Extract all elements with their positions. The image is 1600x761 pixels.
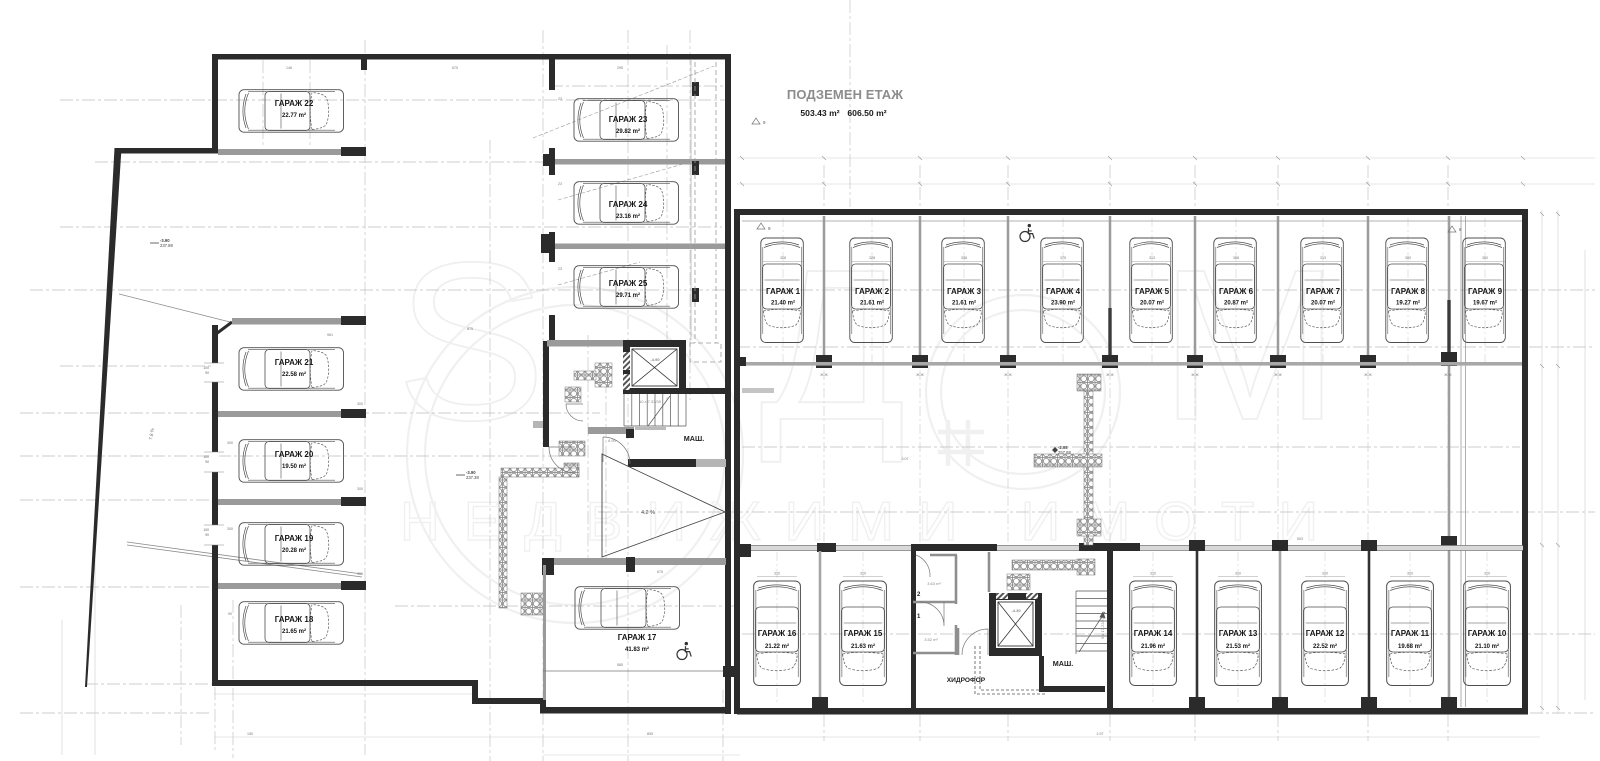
svg-text:875: 875 — [467, 327, 473, 331]
svg-text:21.61 m²: 21.61 m² — [952, 300, 976, 307]
svg-text:ГАРАЖ 22: ГАРАЖ 22 — [275, 99, 314, 108]
svg-text:338: 338 — [961, 256, 967, 260]
svg-text:606.50 m²: 606.50 m² — [847, 108, 886, 118]
svg-text:2.97: 2.97 — [1097, 732, 1104, 736]
svg-text:МАШ.: МАШ. — [684, 434, 704, 443]
svg-text:20.28 m²: 20.28 m² — [282, 547, 306, 554]
svg-text:310: 310 — [1235, 572, 1241, 576]
svg-text:19.27 m²: 19.27 m² — [1396, 300, 1420, 307]
svg-text:300: 300 — [1482, 256, 1488, 260]
svg-text:Ж Ж: Ж Ж — [1004, 373, 1012, 377]
svg-text:310: 310 — [860, 572, 866, 576]
svg-text:ГАРАЖ 20: ГАРАЖ 20 — [275, 450, 314, 459]
svg-text:310: 310 — [774, 572, 780, 576]
svg-text:300: 300 — [357, 402, 363, 406]
svg-text:20.87 m²: 20.87 m² — [1224, 300, 1248, 307]
svg-text:Ж Ж: Ж Ж — [916, 373, 924, 377]
svg-text:ГАРАЖ 3: ГАРАЖ 3 — [947, 287, 982, 296]
svg-text:328: 328 — [869, 256, 875, 260]
svg-text:100: 100 — [203, 455, 209, 459]
svg-text:23: 23 — [558, 97, 562, 101]
svg-text:ГАРАЖ 7: ГАРАЖ 7 — [1306, 287, 1341, 296]
svg-text:ГАРАЖ 6: ГАРАЖ 6 — [1219, 287, 1254, 296]
svg-text:ГАРАЖ 4: ГАРАЖ 4 — [1046, 287, 1081, 296]
svg-text:-4.90: -4.90 — [650, 357, 660, 362]
svg-text:ГАРАЖ 19: ГАРАЖ 19 — [275, 534, 314, 543]
svg-text:237.88: 237.88 — [160, 243, 173, 248]
svg-text:20.07 m²: 20.07 m² — [1311, 300, 1335, 307]
svg-text:ГАРАЖ 18: ГАРАЖ 18 — [275, 615, 314, 624]
svg-text:150: 150 — [247, 732, 253, 736]
svg-text:3.07: 3.07 — [902, 457, 909, 461]
svg-text:9 x 17.22/23: 9 x 17.22/23 — [1100, 616, 1105, 639]
svg-text:90: 90 — [205, 460, 209, 464]
svg-text:ГАРАЖ 15: ГАРАЖ 15 — [844, 629, 883, 638]
svg-text:21.10 m²: 21.10 m² — [1475, 643, 1499, 650]
svg-text:300: 300 — [1405, 256, 1411, 260]
svg-text:Ж Ж: Ж Ж — [1191, 373, 1199, 377]
svg-text:ГАРАЖ 13: ГАРАЖ 13 — [1219, 629, 1258, 638]
svg-text:ГАРАЖ 16: ГАРАЖ 16 — [758, 629, 797, 638]
svg-text:Ж Ж: Ж Ж — [1364, 373, 1372, 377]
svg-text:961: 961 — [327, 333, 333, 337]
svg-text:23.16 m²: 23.16 m² — [616, 213, 640, 220]
svg-text:20.07 m²: 20.07 m² — [1140, 300, 1164, 307]
svg-text:21.96 m²: 21.96 m² — [1141, 643, 1165, 650]
svg-text:308: 308 — [1233, 256, 1239, 260]
svg-text:21.61 m²: 21.61 m² — [860, 300, 884, 307]
svg-text:Д: Д — [760, 224, 906, 465]
svg-text:21.63 m²: 21.63 m² — [851, 643, 875, 650]
svg-text:29.71 m²: 29.71 m² — [616, 292, 640, 299]
svg-text:23: 23 — [558, 182, 562, 186]
svg-text:310: 310 — [1407, 572, 1413, 576]
svg-text:МАШ.: МАШ. — [1053, 659, 1073, 668]
svg-text:Ж Ж: Ж Ж — [820, 373, 828, 377]
svg-text:328: 328 — [780, 256, 786, 260]
svg-text:Ж Ж: Ж Ж — [1274, 373, 1282, 377]
svg-text:237.38: 237.38 — [466, 475, 479, 480]
svg-text:90: 90 — [205, 533, 209, 537]
svg-text:300: 300 — [357, 487, 363, 491]
svg-text:ГАРАЖ 8: ГАРАЖ 8 — [1391, 287, 1426, 296]
svg-text:Ж Ж: Ж Ж — [1106, 373, 1114, 377]
svg-text:22.58 m²: 22.58 m² — [282, 371, 306, 378]
svg-text:ГАРАЖ 10: ГАРАЖ 10 — [1468, 629, 1507, 638]
svg-text:ГАРАЖ 14: ГАРАЖ 14 — [1134, 629, 1173, 638]
svg-text:503.43 m²: 503.43 m² — [800, 108, 839, 118]
svg-text:310: 310 — [1322, 572, 1328, 576]
svg-text:23: 23 — [558, 267, 562, 271]
svg-text:ГАРАЖ 1: ГАРАЖ 1 — [766, 287, 801, 296]
svg-text:3.63 m²: 3.63 m² — [927, 581, 941, 586]
svg-text:29.82 m²: 29.82 m² — [616, 128, 640, 135]
svg-text:21.40 m²: 21.40 m² — [771, 300, 795, 307]
svg-text:3.52 m²: 3.52 m² — [924, 637, 938, 642]
svg-text:90: 90 — [228, 612, 232, 616]
svg-text:295: 295 — [617, 66, 623, 70]
svg-text:21.65 m²: 21.65 m² — [282, 628, 306, 635]
svg-text:19.68 m²: 19.68 m² — [1398, 643, 1422, 650]
svg-text:300: 300 — [227, 527, 233, 531]
svg-text:41.83 m²: 41.83 m² — [625, 646, 649, 653]
svg-text:300: 300 — [227, 441, 233, 445]
svg-text:10 x 7.33/30: 10 x 7.33/30 — [639, 399, 662, 404]
svg-text:675: 675 — [452, 66, 458, 70]
svg-text:585: 585 — [617, 663, 623, 667]
svg-text:21.22 m²: 21.22 m² — [765, 643, 789, 650]
svg-text:ГАРАЖ 5: ГАРАЖ 5 — [1135, 287, 1170, 296]
svg-text:ГАРАЖ 23: ГАРАЖ 23 — [609, 115, 648, 124]
svg-text:100: 100 — [203, 366, 209, 370]
svg-text:675: 675 — [657, 570, 663, 574]
svg-text:146: 146 — [286, 66, 292, 70]
svg-text:Ж Ж: Ж Ж — [1444, 373, 1452, 377]
svg-text:503: 503 — [1297, 537, 1303, 541]
svg-text:М: М — [1160, 224, 1339, 465]
svg-text:313: 313 — [1320, 256, 1326, 260]
svg-text:ГАРАЖ 21: ГАРАЖ 21 — [275, 358, 314, 367]
svg-text:4.2 %: 4.2 % — [641, 510, 655, 516]
svg-text:ГАРАЖ 12: ГАРАЖ 12 — [1306, 629, 1345, 638]
svg-text:22.77 m²: 22.77 m² — [282, 112, 306, 119]
svg-text:ГАРАЖ 17: ГАРАЖ 17 — [618, 633, 657, 642]
svg-text:ПОДЗЕМЕН ЕТАЖ: ПОДЗЕМЕН ЕТАЖ — [787, 87, 903, 102]
svg-text:23.90 m²: 23.90 m² — [1051, 300, 1075, 307]
svg-text:ГАРАЖ 25: ГАРАЖ 25 — [609, 279, 648, 288]
svg-text:ГАРАЖ 9: ГАРАЖ 9 — [1468, 287, 1503, 296]
svg-text:300: 300 — [357, 572, 363, 576]
svg-text:313: 313 — [1149, 256, 1155, 260]
svg-text:-4.30: -4.30 — [1011, 608, 1021, 613]
svg-text:90: 90 — [205, 371, 209, 375]
svg-text:310: 310 — [1150, 572, 1156, 576]
svg-text:ГАРАЖ 24: ГАРАЖ 24 — [609, 200, 648, 209]
svg-text:22.52 m²: 22.52 m² — [1313, 643, 1337, 650]
svg-text:375: 375 — [1060, 256, 1066, 260]
svg-text:257.88: 257.88 — [1058, 450, 1071, 455]
svg-text:ГАРАЖ 2: ГАРАЖ 2 — [855, 287, 890, 296]
svg-text:19.50 m²: 19.50 m² — [282, 463, 306, 470]
svg-text:19.67 m²: 19.67 m² — [1473, 300, 1497, 307]
svg-text:100: 100 — [203, 528, 209, 532]
svg-text:855: 855 — [647, 732, 653, 736]
svg-text:S: S — [396, 215, 546, 467]
svg-text:21.53 m²: 21.53 m² — [1226, 643, 1250, 650]
svg-text:ГАРАЖ 11: ГАРАЖ 11 — [1391, 629, 1430, 638]
svg-text:310: 310 — [1484, 572, 1490, 576]
